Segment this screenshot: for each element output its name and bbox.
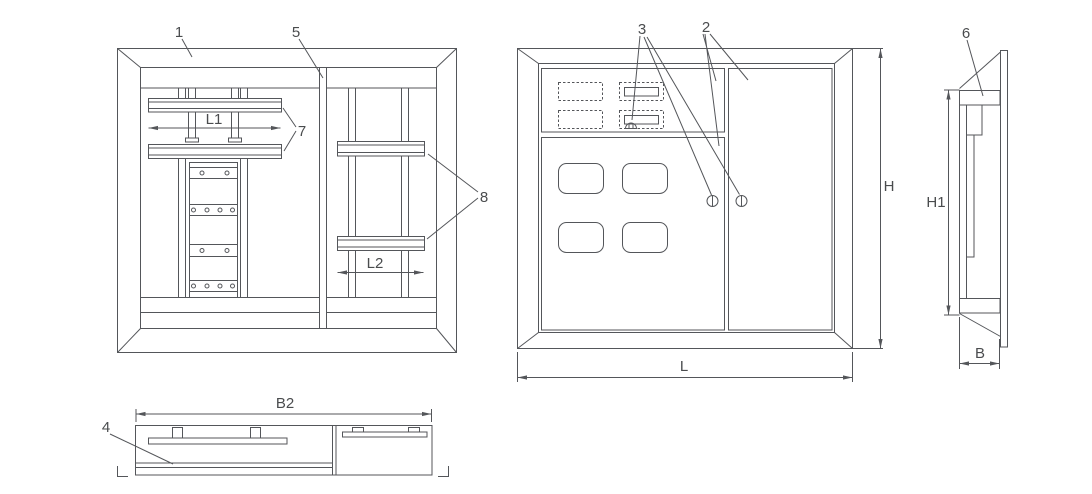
bar-bracket xyxy=(353,428,364,433)
mounting-post xyxy=(241,88,248,99)
bar-bracket xyxy=(251,428,261,439)
door-edge-strip xyxy=(967,135,975,257)
part-label-6: 6 xyxy=(962,25,970,42)
frame-bevels xyxy=(518,49,853,349)
part-label-8: 8 xyxy=(480,189,488,206)
door-lock xyxy=(707,196,718,207)
leader-line xyxy=(299,39,323,78)
wall-panel xyxy=(1001,51,1008,348)
top-flange xyxy=(960,91,1001,106)
part-label-2: 2 xyxy=(702,19,710,36)
part-callout-5: 5 xyxy=(292,24,323,78)
part-label-7: 7 xyxy=(298,123,306,140)
dashed-cutout xyxy=(620,83,664,101)
part-callout-7: 7 xyxy=(283,108,306,151)
mounting-post xyxy=(349,88,356,298)
din-rail xyxy=(149,145,282,159)
part-label-3: 3 xyxy=(638,21,646,38)
cutout-insert xyxy=(625,88,659,97)
bar-bracket xyxy=(173,428,183,439)
internal-structure-view: L1 L2 1 5 7 8 xyxy=(118,24,489,353)
dimension-h1: H1 xyxy=(926,90,959,315)
mounting-post xyxy=(179,159,186,298)
dashed-cutout xyxy=(559,111,603,129)
meter-window xyxy=(623,223,668,253)
dimension-l-label: L xyxy=(680,358,688,375)
terminal-strip xyxy=(190,163,238,298)
din-rail xyxy=(338,237,425,251)
dimension-l1-label: L1 xyxy=(206,111,223,128)
front-view: H L 3 2 xyxy=(518,19,895,382)
outer-frame xyxy=(518,49,853,349)
rail-hanger-foot xyxy=(186,138,199,142)
rail-hanger-foot xyxy=(229,138,242,142)
extension-lines xyxy=(853,49,884,349)
part-label-4: 4 xyxy=(102,419,110,436)
bottom-band-lines xyxy=(141,298,437,313)
dimension-l2-label: L2 xyxy=(367,255,384,272)
dimension-l: L xyxy=(518,352,853,382)
part-callout-1: 1 xyxy=(175,24,192,57)
top-bevel-line xyxy=(960,52,1001,89)
left-door xyxy=(542,138,725,331)
bottom-view: B2 4 xyxy=(102,395,449,477)
mounting-bar xyxy=(343,432,428,437)
dimension-b-label: B xyxy=(975,345,985,362)
meter-box-drawing: L1 L2 1 5 7 8 xyxy=(0,0,1092,489)
bar-bracket xyxy=(409,428,420,433)
technical-drawing-canvas: L1 L2 1 5 7 8 xyxy=(0,0,1092,494)
dimension-b2-label: B2 xyxy=(276,395,294,412)
extension-lines xyxy=(944,90,960,315)
center-divider xyxy=(333,426,337,476)
dimension-h-label: H xyxy=(884,178,895,195)
leader-line xyxy=(283,108,296,151)
mounting-post xyxy=(179,88,186,99)
bottom-flange xyxy=(960,299,1001,314)
part-label-1: 1 xyxy=(175,24,183,41)
mounting-post xyxy=(402,88,409,298)
leader-line xyxy=(703,34,748,146)
din-rail xyxy=(149,99,282,113)
part-callout-6: 6 xyxy=(962,25,983,96)
leader-line xyxy=(967,40,983,96)
base-strip xyxy=(136,463,333,468)
hinge-block xyxy=(967,105,983,135)
bottom-bevel-line xyxy=(960,314,1001,337)
dimension-l1: L1 xyxy=(149,111,281,128)
meter-window xyxy=(623,164,668,194)
mounting-post xyxy=(241,159,248,298)
meter-window xyxy=(559,164,604,194)
dimension-b2: B2 xyxy=(136,395,432,422)
part-callout-3: 3 xyxy=(632,21,740,195)
dashed-cutout xyxy=(559,83,603,101)
leader-line xyxy=(427,154,478,239)
door-lock xyxy=(736,196,747,207)
rail-hanger xyxy=(189,88,196,138)
meter-window xyxy=(559,223,604,253)
mounting-bar xyxy=(149,438,288,444)
dimension-h: H xyxy=(853,49,895,349)
rail-hanger xyxy=(232,88,239,138)
part-label-5: 5 xyxy=(292,24,300,41)
dimension-h1-label: H1 xyxy=(926,194,945,211)
side-view: H1 B 6 xyxy=(926,25,1007,369)
din-rail xyxy=(338,142,425,157)
center-divider xyxy=(320,68,327,329)
